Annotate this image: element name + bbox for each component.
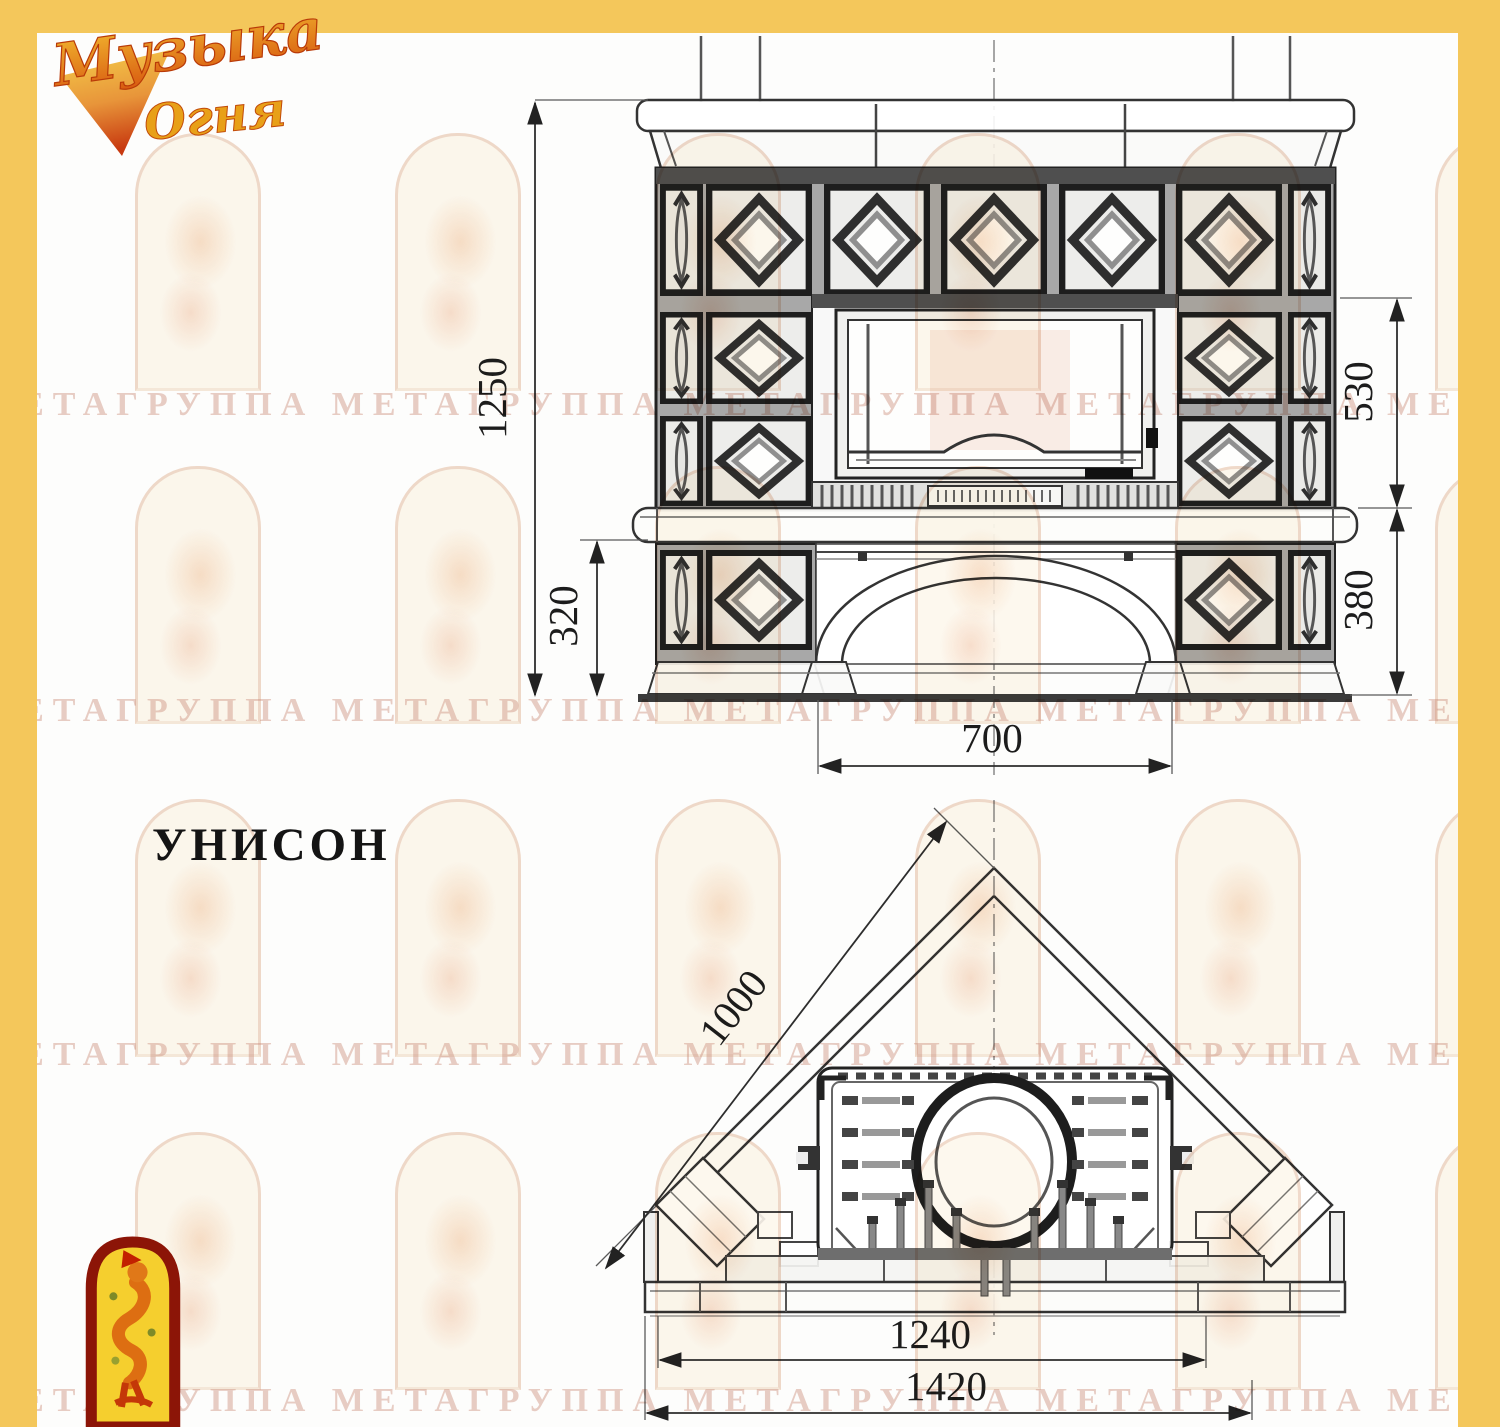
corner-emblem: [83, 1236, 183, 1427]
dim-1420: 1420: [905, 1363, 987, 1409]
chimney-lines: [701, 36, 1290, 102]
dim-320: 320: [540, 585, 586, 647]
right-border-band: [1458, 0, 1500, 1427]
firebox-door: [812, 294, 1178, 510]
dim-1240: 1240: [889, 1311, 971, 1357]
base-plinth: [638, 662, 1352, 702]
logo-text-line1: Музыка: [47, 4, 328, 100]
front-band: [645, 1256, 1345, 1316]
dim-530: 530: [1335, 361, 1381, 423]
dim-1000: 1000: [690, 961, 777, 1054]
page-title: УНИСОН: [152, 818, 391, 872]
lower-arch-section: [656, 544, 1335, 664]
technical-drawing: 1250 320 530 380 700: [0, 0, 1500, 1427]
dim-700: 700: [961, 715, 1023, 761]
dim-380: 380: [1335, 569, 1381, 631]
brand-logo: Музыка Огня: [28, 4, 328, 184]
page-background: 1250 320 530 380 700: [0, 0, 1500, 1427]
brand-logo-graphic: Музыка Огня: [28, 4, 328, 184]
dim-1250: 1250: [469, 357, 515, 439]
mantel-shelf: [633, 508, 1357, 542]
corner-emblem-graphic: [83, 1236, 183, 1427]
logo-text-line2: Огня: [141, 81, 288, 152]
plan-view-drawing: 1000 1240 1420: [596, 800, 1345, 1420]
left-border-band: [0, 0, 37, 1427]
front-view-drawing: 1250 320 530 380 700: [469, 36, 1412, 775]
cornice: [637, 100, 1354, 168]
